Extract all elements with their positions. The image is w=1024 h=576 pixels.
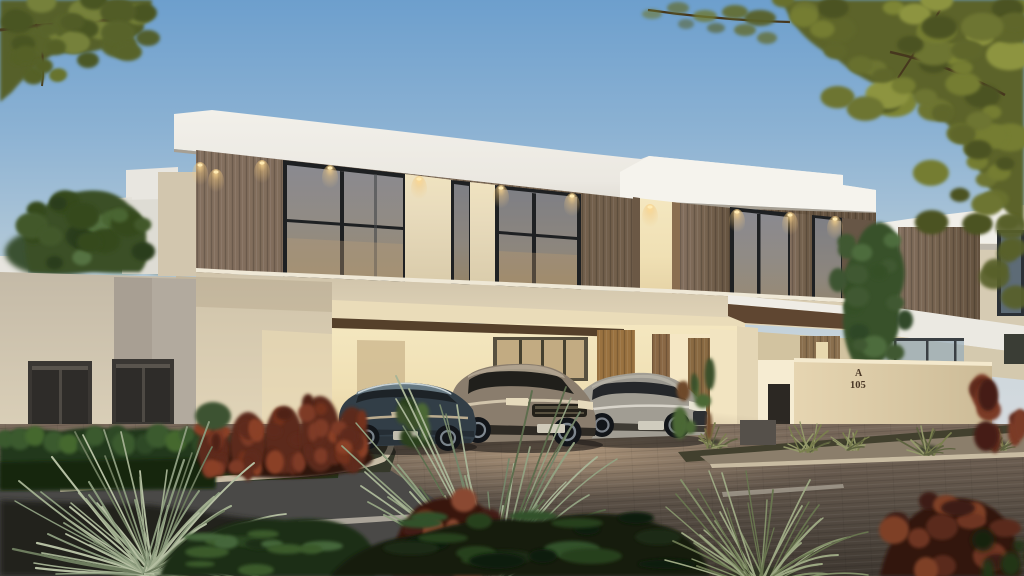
svg-text:105: 105 <box>850 380 866 391</box>
svg-text:A: A <box>855 368 863 379</box>
